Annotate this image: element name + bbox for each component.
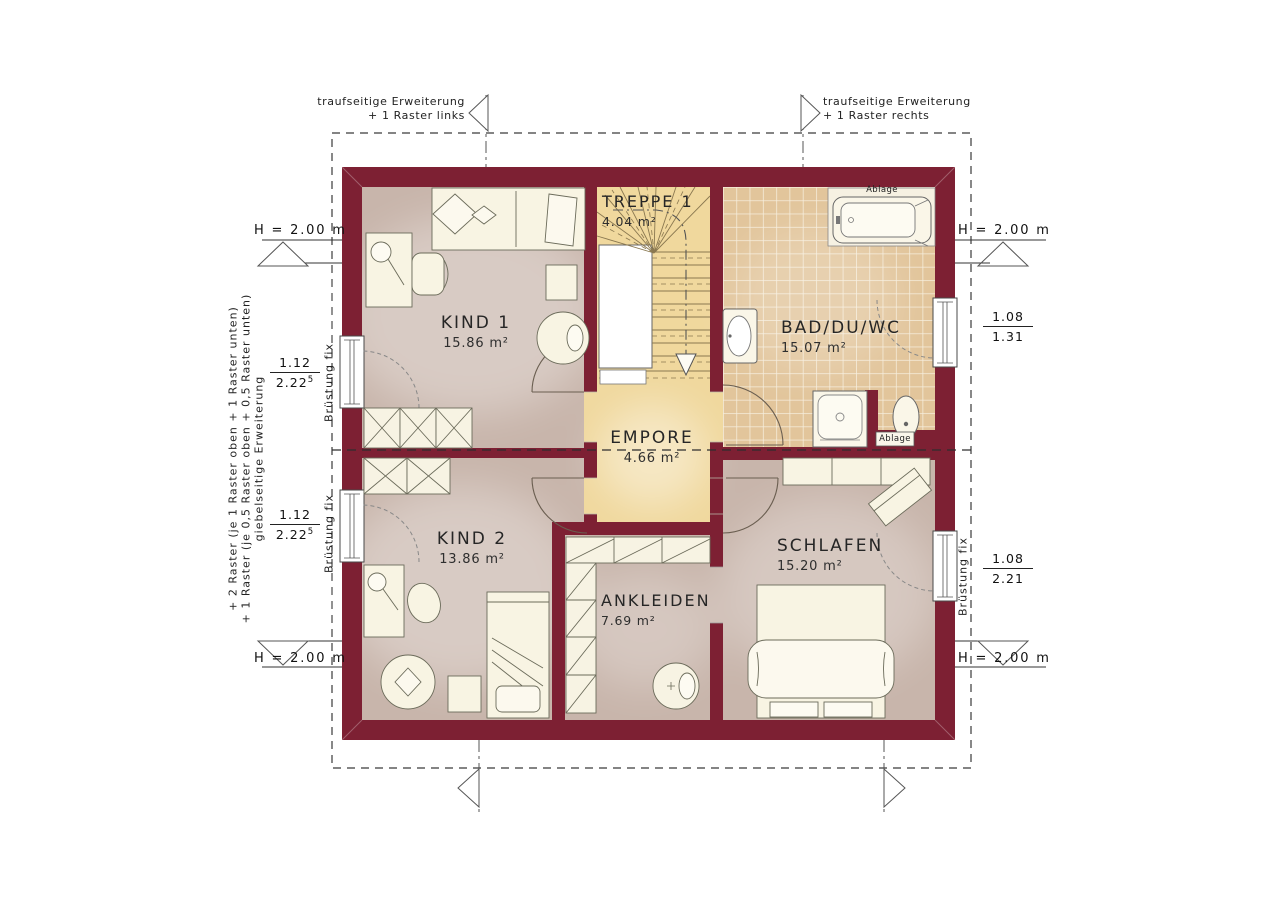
dimension-width: 1.08 (983, 309, 1033, 327)
annotation-line: + 1 Raster rechts (823, 109, 1013, 123)
dimension-right-window-bath: 1.08 1.31 (983, 309, 1033, 344)
annotation-eaves-right: traufseitige Erweiterung + 1 Raster rech… (823, 95, 1013, 123)
room-name: BAD/DU/WC (781, 318, 941, 338)
room-name: ANKLEIDEN (601, 591, 751, 610)
height-label-top-left: H = 2.00 m (254, 223, 342, 238)
room-area: 4.04 m² (602, 214, 722, 229)
room-label-treppe: TREPPE 1 4.04 m² (602, 192, 722, 229)
dimension-height: 2.21 (983, 569, 1033, 586)
dimension-height: 1.31 (983, 327, 1033, 344)
height-label-top-right: H = 2.00 m (958, 223, 1046, 238)
annotation-eaves-left: traufseitige Erweiterung + 1 Raster link… (300, 95, 465, 123)
room-name: KIND 1 (396, 313, 556, 333)
room-label-schlafen: SCHLAFEN 15.20 m² (777, 536, 927, 574)
room-label-kind2: KIND 2 13.86 m² (392, 529, 552, 567)
annotation-line: traufseitige Erweiterung (300, 95, 465, 109)
room-area: 13.86 m² (392, 552, 552, 567)
annotation-line: + 1 Raster links (300, 109, 465, 123)
room-area: 15.07 m² (781, 341, 941, 356)
bathtub (828, 188, 935, 246)
room-label-kind1: KIND 1 15.86 m² (396, 313, 556, 351)
dimension-width: 1.08 (983, 551, 1033, 569)
room-area: 15.20 m² (777, 559, 927, 574)
height-label-bottom-right: H = 2.00 m (958, 651, 1046, 666)
annotation-line: traufseitige Erweiterung (823, 95, 1013, 109)
room-label-ankleiden: ANKLEIDEN 7.69 m² (601, 591, 751, 628)
room-area: 4.66 m² (572, 451, 732, 466)
dimension-width: 1.12 (270, 355, 320, 373)
gable-annotation-line3: + 2 Raster (je 1 Raster oben + 1 Raster … (227, 294, 240, 624)
parapet-label-left-1: Brüstung fix (323, 323, 336, 443)
room-name: SCHLAFEN (777, 536, 927, 556)
parapet-label-right: Brüstung fix (957, 517, 970, 637)
shelf-label-bathtub: Ablage (850, 185, 914, 195)
dimension-right-window-bedroom: 1.08 2.21 (983, 551, 1033, 586)
dimension-width: 1.12 (270, 507, 320, 525)
room-label-empore: EMPORE 4.66 m² (572, 428, 732, 466)
height-label-bottom-left: H = 2.00 m (254, 651, 342, 666)
room-label-bad: BAD/DU/WC 15.07 m² (781, 318, 941, 356)
gable-annotation-line1: giebelseitige Erweiterung (253, 359, 266, 559)
dimension-height: 2.225 (270, 373, 320, 390)
shelf-label-wc: Ablage (876, 434, 914, 444)
dimension-height: 2.225 (270, 525, 320, 542)
room-name: EMPORE (572, 428, 732, 448)
gable-annotation-line2: + 1 Raster (je 0,5 Raster oben + 0,5 Ras… (240, 294, 253, 624)
dimension-left-window-1: 1.12 2.225 (270, 355, 320, 390)
room-area: 15.86 m² (396, 336, 556, 351)
dimension-left-window-2: 1.12 2.225 (270, 507, 320, 542)
floor-plan-page: traufseitige Erweiterung + 1 Raster link… (0, 0, 1280, 905)
parapet-label-left-2: Brüstung fix (323, 474, 336, 594)
shower (813, 391, 867, 447)
washbasin (723, 309, 757, 363)
room-name: TREPPE 1 (602, 192, 722, 211)
room-name: KIND 2 (392, 529, 552, 549)
room-area: 7.69 m² (601, 613, 751, 628)
